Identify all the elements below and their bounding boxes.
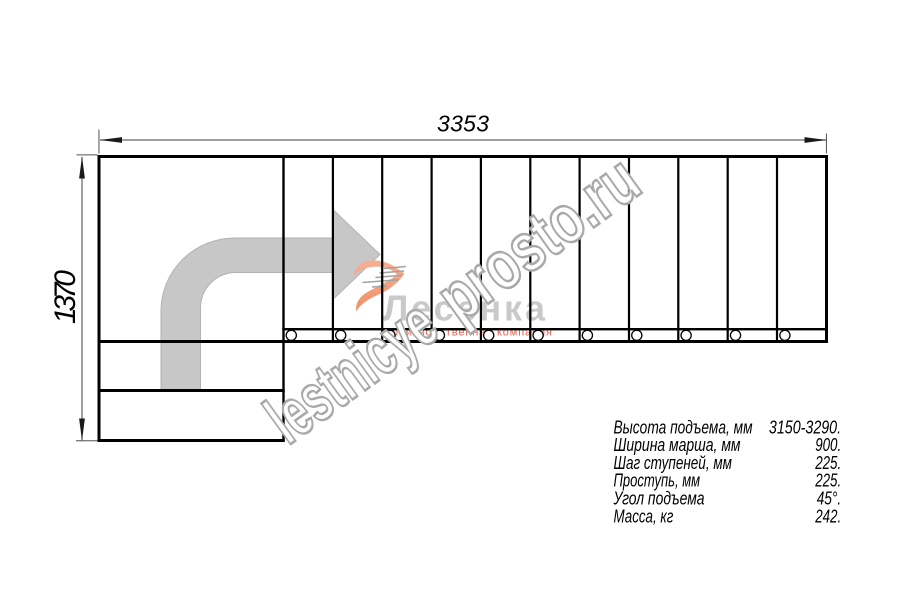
svg-text:242.: 242. [814,506,841,526]
svg-text:1370: 1370 [49,270,82,324]
svg-text:Масса, кг: Масса, кг [614,506,674,526]
svg-text:3353: 3353 [437,111,489,137]
